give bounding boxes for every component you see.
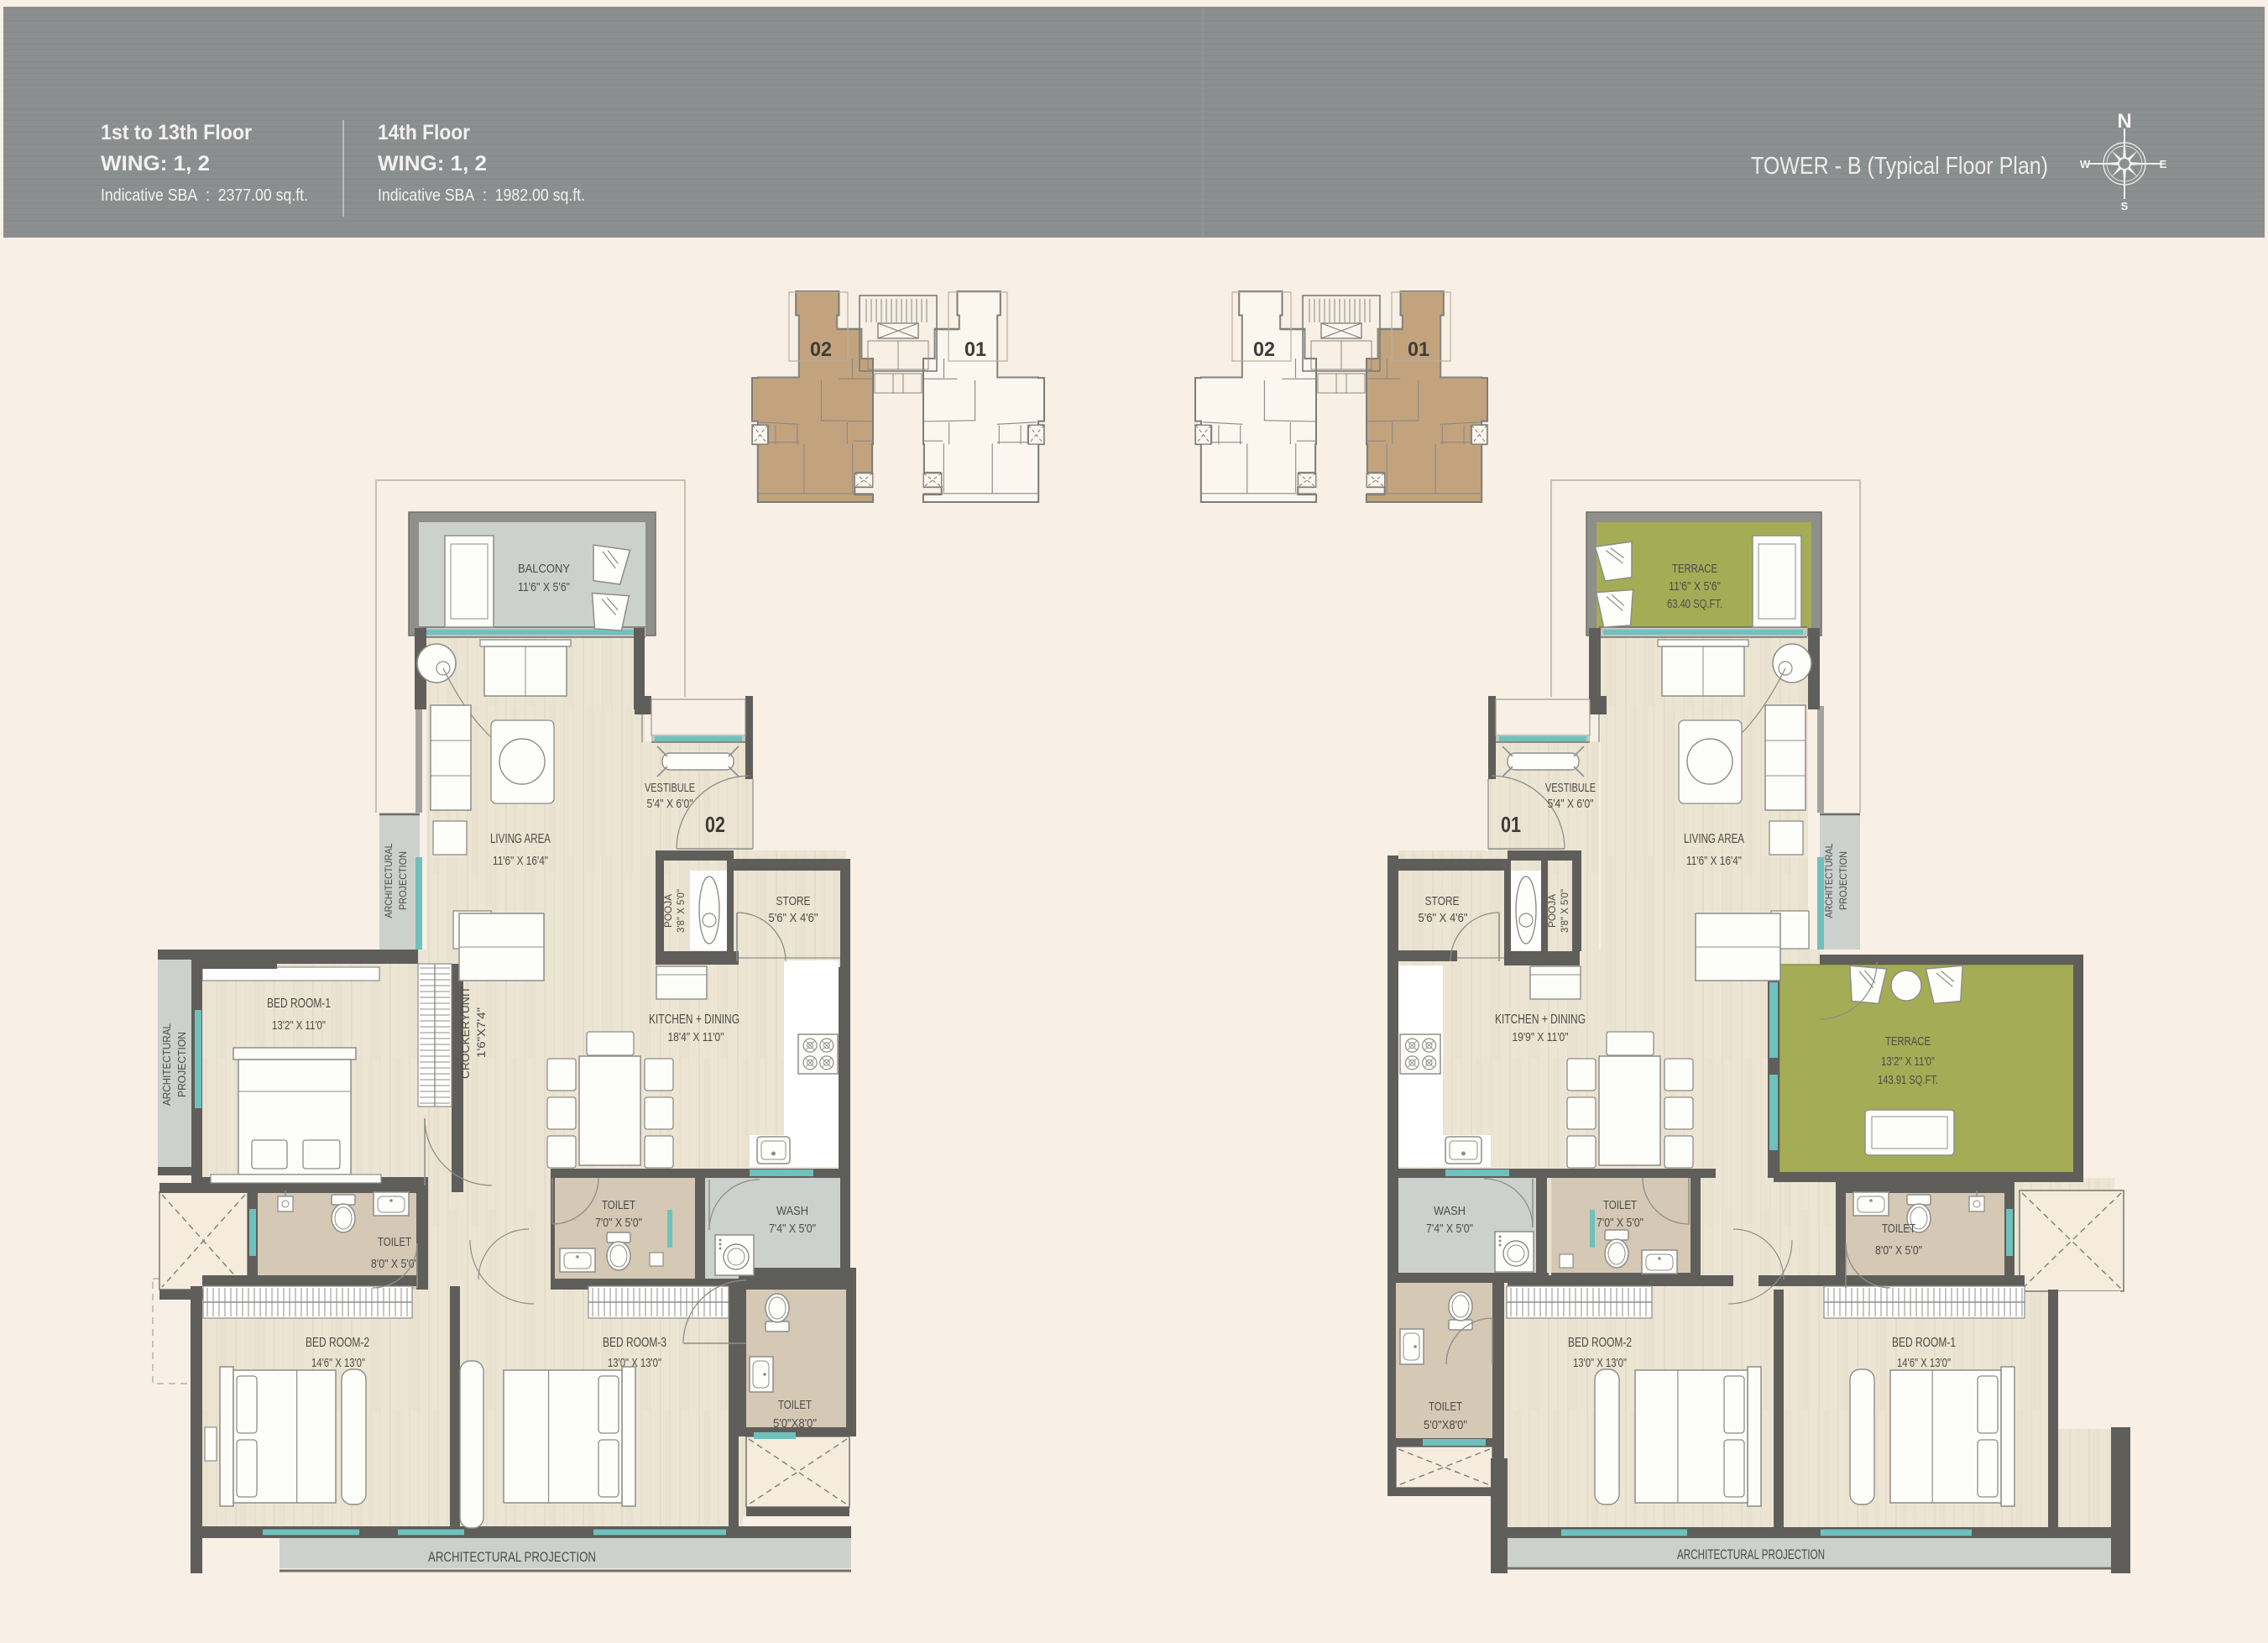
svg-text:PROJECTION: PROJECTION [175, 1032, 188, 1097]
svg-text:5'4" X 6'0": 5'4" X 6'0" [647, 797, 693, 811]
svg-text:02: 02 [810, 338, 832, 361]
svg-text:1st to 13th Floor: 1st to 13th Floor [101, 121, 252, 144]
svg-text:BED ROOM-2: BED ROOM-2 [1568, 1336, 1632, 1350]
svg-text:STORE: STORE [776, 894, 811, 908]
svg-text:ARCHITECTURAL: ARCHITECTURAL [383, 843, 395, 918]
svg-text:13'2" X 11'0": 13'2" X 11'0" [272, 1018, 326, 1033]
svg-text:5'6" X 4'6": 5'6" X 4'6" [1419, 911, 1468, 925]
svg-text:TOILET: TOILET [778, 1398, 812, 1412]
svg-text:1'6"X7'4": 1'6"X7'4" [474, 1007, 488, 1058]
svg-text:Indicative SBA : 1982.00 sq.: Indicative SBA : 1982.00 sq.ft. [378, 186, 585, 205]
svg-text:02: 02 [705, 812, 725, 837]
svg-text:8'0" X 5'0": 8'0" X 5'0" [371, 1257, 418, 1271]
svg-text:N: N [2117, 110, 2131, 133]
svg-text:5'4" X 6'0": 5'4" X 6'0" [1548, 797, 1594, 811]
svg-text:TERRACE: TERRACE [1885, 1034, 1931, 1049]
svg-text:ARCHITECTURAL PROJECTION: ARCHITECTURAL PROJECTION [428, 1549, 596, 1565]
svg-text:14'6" X 13'0": 14'6" X 13'0" [311, 1356, 365, 1370]
svg-text:TOILET: TOILET [602, 1198, 635, 1212]
svg-text:5'0"X8'0": 5'0"X8'0" [1424, 1418, 1467, 1432]
svg-text:19'9" X 11'0": 19'9" X 11'0" [1513, 1030, 1569, 1044]
svg-text:143.91 SQ.FT.: 143.91 SQ.FT. [1878, 1073, 1938, 1087]
svg-text:CROCKERYUNIT: CROCKERYUNIT [458, 986, 472, 1079]
svg-text:ARCHITECTURAL: ARCHITECTURAL [160, 1023, 173, 1106]
svg-text:3'8" X 5'0": 3'8" X 5'0" [1559, 889, 1570, 933]
svg-text:TERRACE: TERRACE [1672, 562, 1717, 576]
svg-text:TOILET: TOILET [378, 1235, 411, 1249]
svg-text:TOWER - B (Typical Floor Plan): TOWER - B (Typical Floor Plan) [1751, 153, 2048, 180]
svg-text:WING: 1, 2: WING: 1, 2 [101, 152, 210, 175]
svg-text:7'4" X 5'0": 7'4" X 5'0" [1426, 1222, 1473, 1236]
svg-text:POOJA: POOJA [1546, 894, 1558, 928]
svg-text:WASH: WASH [1434, 1204, 1466, 1218]
svg-text:11'6" X 5'6": 11'6" X 5'6" [518, 580, 570, 594]
svg-text:63.40 SQ.FT.: 63.40 SQ.FT. [1667, 597, 1722, 611]
svg-text:E: E [2160, 158, 2167, 170]
svg-text:11'6" X 16'4": 11'6" X 16'4" [1686, 854, 1742, 868]
svg-text:TOILET: TOILET [1429, 1400, 1462, 1414]
svg-text:11'6" X 5'6": 11'6" X 5'6" [1669, 579, 1721, 594]
svg-text:LIVING AREA: LIVING AREA [1684, 832, 1744, 846]
svg-text:POOJA: POOJA [662, 894, 674, 928]
svg-text:18'4" X 11'0": 18'4" X 11'0" [668, 1030, 724, 1044]
svg-text:WING: 1, 2: WING: 1, 2 [378, 152, 487, 175]
svg-text:14th Floor: 14th Floor [378, 121, 470, 144]
svg-text:7'0" X 5'0": 7'0" X 5'0" [1596, 1216, 1644, 1230]
svg-text:3'8" X 5'0": 3'8" X 5'0" [675, 889, 687, 933]
svg-text:ARCHITECTURAL: ARCHITECTURAL [1823, 843, 1835, 918]
svg-text:S: S [2121, 200, 2129, 212]
svg-text:14'6" X 13'0": 14'6" X 13'0" [1897, 1356, 1951, 1370]
svg-text:7'4" X 5'0": 7'4" X 5'0" [769, 1222, 816, 1236]
svg-text:TOILET: TOILET [1603, 1198, 1637, 1212]
svg-text:01: 01 [964, 338, 986, 361]
svg-text:W: W [2080, 158, 2091, 170]
svg-text:11'6" X 16'4": 11'6" X 16'4" [493, 854, 548, 868]
svg-text:Indicative SBA : 2377.00 sq.: Indicative SBA : 2377.00 sq.ft. [101, 186, 308, 205]
svg-text:BALCONY: BALCONY [518, 562, 570, 576]
svg-text:ARCHITECTURAL PROJECTION: ARCHITECTURAL PROJECTION [1677, 1546, 1825, 1562]
svg-text:WASH: WASH [776, 1204, 808, 1218]
svg-text:BED ROOM-2: BED ROOM-2 [306, 1336, 369, 1350]
svg-text:13'0" X 13'0": 13'0" X 13'0" [1573, 1356, 1627, 1370]
svg-text:8'0" X 5'0": 8'0" X 5'0" [1875, 1243, 1922, 1258]
svg-text:13'2" X 11'0": 13'2" X 11'0" [1881, 1054, 1935, 1069]
svg-text:BED ROOM-1: BED ROOM-1 [1892, 1336, 1956, 1350]
svg-text:BED ROOM-1: BED ROOM-1 [267, 997, 331, 1011]
svg-text:01: 01 [1501, 812, 1521, 837]
svg-text:VESTIBULE: VESTIBULE [645, 781, 695, 795]
svg-text:LIVING AREA: LIVING AREA [490, 832, 551, 846]
svg-text:01: 01 [1408, 338, 1429, 361]
svg-text:TOILET: TOILET [1882, 1222, 1915, 1236]
svg-text:KITCHEN + DINING: KITCHEN + DINING [649, 1012, 739, 1027]
svg-text:7'0" X 5'0": 7'0" X 5'0" [595, 1216, 642, 1230]
svg-text:STORE: STORE [1425, 894, 1460, 908]
svg-text:PROJECTION: PROJECTION [397, 851, 409, 910]
svg-text:BED ROOM-3: BED ROOM-3 [603, 1336, 666, 1350]
svg-text:KITCHEN + DINING: KITCHEN + DINING [1495, 1012, 1586, 1027]
svg-text:PROJECTION: PROJECTION [1837, 851, 1849, 910]
svg-text:5'0"X8'0": 5'0"X8'0" [773, 1416, 817, 1431]
svg-text:VESTIBULE: VESTIBULE [1545, 781, 1596, 795]
svg-text:02: 02 [1253, 338, 1275, 361]
svg-text:5'6" X 4'6": 5'6" X 4'6" [769, 911, 818, 925]
